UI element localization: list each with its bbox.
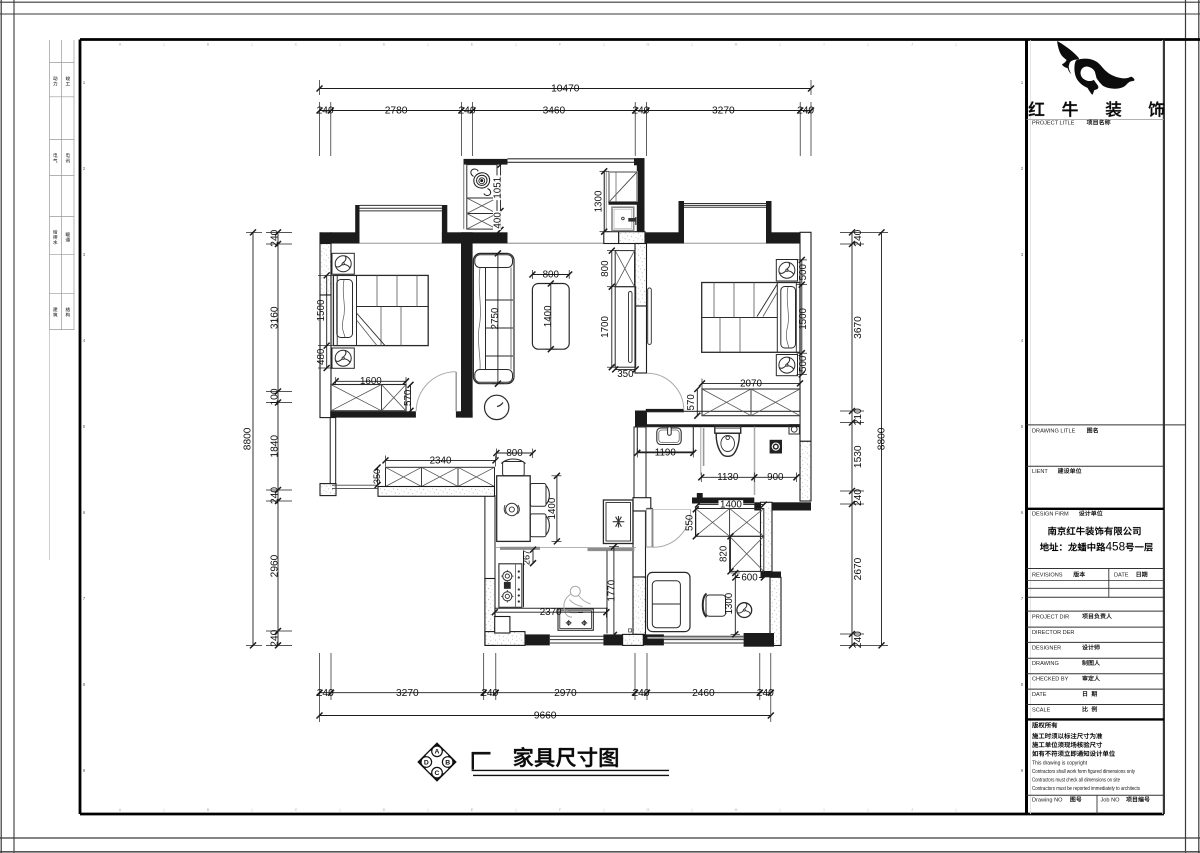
svg-text:240: 240: [853, 229, 864, 246]
svg-text:电: 电: [53, 152, 58, 158]
svg-text:3270: 3270: [396, 688, 419, 699]
svg-text:240: 240: [853, 631, 864, 648]
svg-text:240: 240: [797, 106, 814, 117]
svg-text:|: |: [868, 43, 869, 47]
svg-text:1400: 1400: [547, 497, 558, 519]
svg-text:2070: 2070: [740, 378, 762, 389]
svg-text:|: |: [340, 808, 341, 812]
svg-text:SCALE: SCALE: [1032, 707, 1051, 713]
svg-text:210: 210: [853, 408, 864, 425]
svg-text:I: I: [823, 808, 824, 812]
svg-text:1300: 1300: [594, 190, 605, 212]
svg-text:|: |: [428, 808, 429, 812]
svg-text:|: |: [340, 43, 341, 47]
svg-text:D: D: [424, 759, 429, 766]
svg-text:1300: 1300: [724, 592, 735, 614]
svg-text:3670: 3670: [853, 316, 864, 339]
svg-text:240: 240: [317, 688, 334, 699]
svg-text:DESIGN FIRM: DESIGN FIRM: [1032, 512, 1069, 518]
svg-text:458: 458: [1106, 540, 1126, 554]
svg-text:2960: 2960: [270, 554, 281, 577]
svg-text:I: I: [823, 43, 824, 47]
svg-text:9660: 9660: [534, 711, 557, 722]
svg-text:240: 240: [270, 229, 281, 246]
svg-text:|: |: [956, 43, 957, 47]
svg-text:REVISIONS: REVISIONS: [1032, 573, 1063, 579]
svg-text:DRAWING: DRAWING: [1032, 661, 1059, 667]
svg-text:C: C: [435, 770, 440, 777]
svg-text:|: |: [252, 808, 253, 812]
svg-text:800: 800: [506, 448, 523, 459]
svg-text:100: 100: [270, 388, 281, 405]
svg-text:350: 350: [617, 369, 634, 380]
svg-text:A: A: [435, 749, 440, 756]
svg-text:240: 240: [317, 106, 334, 117]
svg-text:570: 570: [403, 389, 414, 406]
svg-text:|: |: [692, 808, 693, 812]
svg-text:|: |: [780, 808, 781, 812]
svg-text:PROJECT DIR: PROJECT DIR: [1032, 614, 1069, 620]
svg-text:|: |: [780, 43, 781, 47]
svg-text:J: J: [911, 808, 913, 812]
svg-text:电: 电: [66, 152, 71, 158]
svg-text:A: A: [119, 43, 122, 47]
svg-text:8800: 8800: [877, 427, 888, 450]
svg-text:DATE: DATE: [1114, 573, 1129, 579]
svg-text:C: C: [295, 43, 298, 47]
svg-text:1500: 1500: [316, 299, 327, 321]
svg-text:E: E: [471, 43, 474, 47]
svg-text:240: 240: [270, 487, 281, 504]
svg-text:|: |: [604, 43, 605, 47]
svg-text:|: |: [604, 808, 605, 812]
svg-text:400: 400: [492, 212, 503, 229]
svg-text:H: H: [735, 808, 738, 812]
svg-text:550: 550: [685, 514, 696, 531]
svg-text:2370: 2370: [540, 607, 562, 618]
svg-text:|: |: [164, 808, 165, 812]
svg-text:2460: 2460: [692, 688, 715, 699]
svg-text:|: |: [516, 43, 517, 47]
svg-text:|: |: [692, 43, 693, 47]
svg-text:240: 240: [632, 106, 649, 117]
svg-text:B: B: [445, 759, 450, 766]
svg-text:|: |: [164, 43, 165, 47]
svg-text:CHECKED BY: CHECKED BY: [1032, 677, 1069, 683]
svg-text:480: 480: [316, 348, 327, 365]
svg-text:Drawing NO: Drawing NO: [1032, 798, 1063, 804]
svg-text:1400: 1400: [543, 305, 554, 327]
svg-text:900: 900: [767, 472, 784, 483]
svg-text:240: 240: [270, 629, 281, 646]
svg-text:Contractors must be reported i: Contractors must be reported immediately…: [1032, 786, 1140, 792]
svg-text:267: 267: [522, 550, 532, 565]
svg-text:|: |: [868, 808, 869, 812]
svg-text:1500: 1500: [798, 307, 809, 329]
svg-text:DATE: DATE: [1032, 692, 1047, 698]
svg-text:H: H: [735, 43, 738, 47]
svg-text:2970: 2970: [554, 688, 577, 699]
svg-text:3270: 3270: [712, 106, 735, 117]
svg-text:820: 820: [719, 545, 730, 562]
svg-text:B: B: [207, 808, 210, 812]
svg-text:500: 500: [798, 355, 809, 372]
svg-text:10470: 10470: [551, 84, 580, 95]
svg-text:J: J: [911, 43, 913, 47]
svg-text:3160: 3160: [270, 306, 281, 329]
svg-text:E: E: [471, 808, 474, 812]
svg-text:D: D: [383, 808, 386, 812]
svg-text:240: 240: [853, 489, 864, 506]
svg-text:1840: 1840: [270, 435, 281, 458]
svg-text:800: 800: [600, 260, 611, 277]
svg-text:1051: 1051: [492, 177, 503, 199]
svg-text:|: |: [428, 43, 429, 47]
svg-text:Job NO: Job NO: [1101, 798, 1121, 804]
svg-text:1600: 1600: [360, 376, 382, 387]
svg-text:240: 240: [459, 106, 476, 117]
svg-text:570: 570: [686, 394, 697, 411]
svg-text:240: 240: [481, 688, 498, 699]
svg-text:G: G: [647, 808, 650, 812]
svg-text:1530: 1530: [853, 445, 864, 468]
svg-text:This drawing is copyright: This drawing is copyright: [1032, 760, 1088, 766]
svg-text:1770: 1770: [607, 579, 618, 601]
svg-text:240: 240: [633, 688, 650, 699]
svg-text:DRAWING LITLE: DRAWING LITLE: [1032, 429, 1076, 435]
svg-text:1700: 1700: [600, 316, 611, 338]
svg-text:2340: 2340: [430, 455, 452, 466]
svg-text:3460: 3460: [543, 106, 566, 117]
svg-text:D: D: [383, 43, 386, 47]
svg-text:800: 800: [543, 269, 560, 280]
svg-text:350: 350: [372, 469, 382, 484]
svg-text:2670: 2670: [853, 557, 864, 580]
svg-text:500: 500: [798, 264, 809, 281]
svg-text:1400: 1400: [720, 500, 742, 511]
svg-text:C: C: [295, 808, 298, 812]
svg-text:1130: 1130: [717, 472, 739, 483]
svg-text:2750: 2750: [490, 307, 501, 329]
svg-text:LIENT: LIENT: [1032, 469, 1048, 475]
svg-text:8800: 8800: [243, 427, 254, 450]
svg-text:PROJECT LITLE: PROJECT LITLE: [1032, 121, 1075, 127]
svg-text:B: B: [207, 43, 210, 47]
svg-text:2780: 2780: [385, 106, 408, 117]
svg-text:Contractors shall work form fi: Contractors shall work form figured dime…: [1032, 769, 1135, 775]
svg-text:DIRECTOR DER: DIRECTOR DER: [1032, 630, 1074, 636]
svg-text:G: G: [647, 43, 650, 47]
svg-text:1190: 1190: [655, 448, 677, 459]
svg-text:|: |: [516, 808, 517, 812]
svg-text:600: 600: [741, 572, 758, 583]
svg-text:|: |: [956, 808, 957, 812]
svg-text:DESIGNER: DESIGNER: [1032, 646, 1061, 652]
svg-text:Contractors must check all dim: Contractors must check all dimensions on…: [1032, 777, 1120, 783]
svg-text:|: |: [252, 43, 253, 47]
svg-text:A: A: [119, 808, 122, 812]
svg-text:240: 240: [757, 688, 774, 699]
